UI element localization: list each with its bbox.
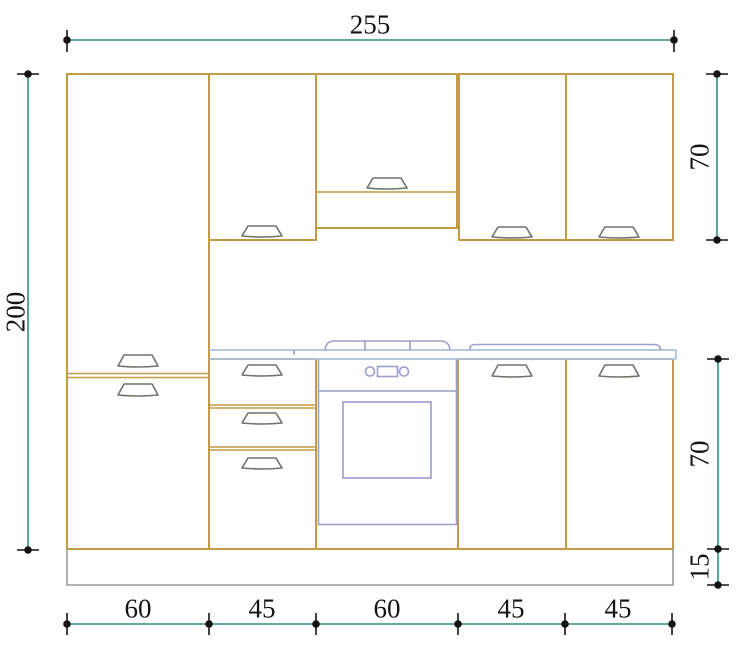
dim-dot <box>63 36 71 44</box>
drawer-handle <box>242 365 282 376</box>
dim-label-width-5: 45 <box>605 596 632 623</box>
door-handle <box>242 226 282 237</box>
kitchen-elevation-drawing: 255 200 70 70 15 60 45 60 45 45 <box>0 0 750 659</box>
dim-dot <box>205 620 213 628</box>
dim-label-base-cabinet-height: 70 <box>687 441 714 468</box>
dim-label-width-4: 45 <box>498 596 525 623</box>
dimension-bottom-widths <box>63 613 676 635</box>
dim-dot <box>312 620 320 628</box>
drawer-unit-box <box>209 359 316 549</box>
dim-dot <box>24 546 32 554</box>
dim-label-width-2: 45 <box>249 596 276 623</box>
plinth-outline <box>67 549 673 585</box>
dim-dot <box>713 70 721 78</box>
drawer-handle <box>242 413 282 424</box>
handles <box>118 178 639 469</box>
upper-cabinets <box>67 74 673 240</box>
dim-dot <box>668 620 676 628</box>
elevation-canvas <box>0 0 750 659</box>
dim-dot <box>714 355 722 363</box>
dim-label-width-1: 60 <box>125 596 152 623</box>
hob <box>294 341 660 355</box>
oven-display <box>378 367 398 377</box>
dim-dot <box>714 581 722 589</box>
dim-dot <box>714 545 722 553</box>
wall-cabinet-over-hob <box>316 74 457 228</box>
door-handle <box>492 365 532 377</box>
dim-dot <box>713 236 721 244</box>
dim-dot <box>24 70 32 78</box>
base-cabinets <box>67 359 673 549</box>
hob-burner-body <box>325 341 450 350</box>
oven <box>319 360 457 525</box>
dim-dot <box>63 620 71 628</box>
door-handle <box>599 227 639 238</box>
dim-dot <box>670 36 678 44</box>
drawer-handle <box>242 458 282 469</box>
door-handle <box>599 365 639 377</box>
dim-dot <box>454 620 462 628</box>
door-handle <box>118 384 158 396</box>
dim-label-plinth-height: 15 <box>687 554 714 581</box>
dim-label-total-width: 255 <box>350 12 391 39</box>
dim-label-width-3: 60 <box>374 596 401 623</box>
oven-knob-left <box>366 367 375 376</box>
tall-cabinet-box <box>67 74 209 549</box>
tall-cabinet <box>67 74 209 549</box>
oven-front-frame <box>319 360 457 525</box>
dim-label-upper-cabinet-height: 70 <box>687 144 714 171</box>
oven-knob-right <box>400 367 409 376</box>
dim-label-total-height: 200 <box>3 292 30 333</box>
oven-door-window <box>343 402 431 478</box>
door-handle <box>367 178 407 189</box>
countertop <box>209 350 676 359</box>
wall-cabinet-left <box>209 74 316 240</box>
door-handle <box>492 227 532 238</box>
plinth <box>67 549 673 585</box>
door-handle <box>118 355 158 367</box>
dim-dot <box>561 620 569 628</box>
